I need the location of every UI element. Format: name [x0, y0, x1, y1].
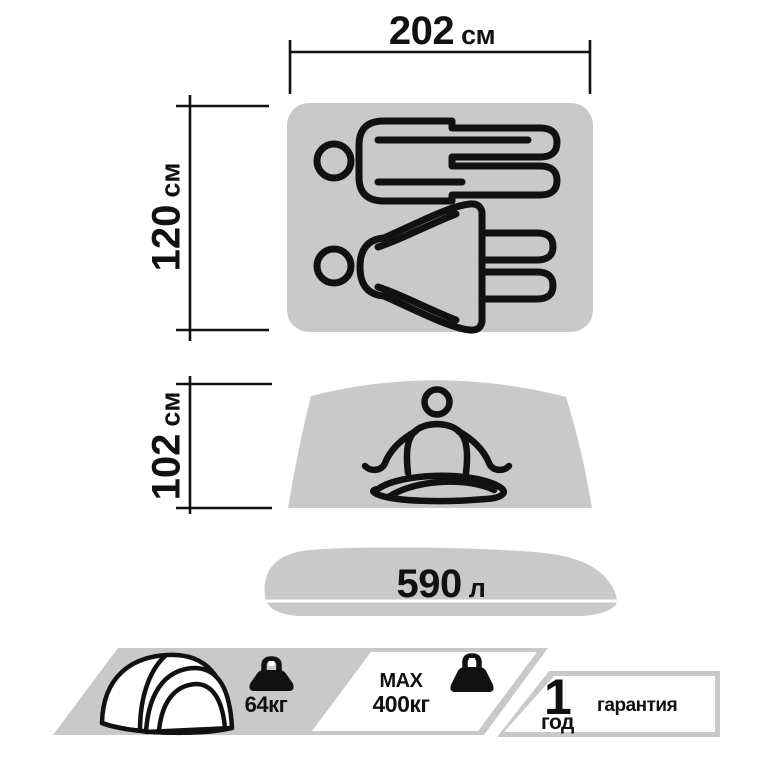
depth-dimension-line [176, 95, 269, 341]
width-dimension-label: 202см [389, 11, 495, 51]
tent-infographic: 202см 120см 102см 590л 64кг MAX 400кг 1 … [0, 0, 768, 768]
infographic-canvas [0, 0, 768, 768]
cross-section-shape [288, 380, 592, 508]
height-value: 102 [145, 434, 189, 501]
packed-weight-label: 64кг [245, 694, 288, 716]
volume-unit: л [469, 573, 486, 603]
max-load-line1: MAX [373, 671, 430, 691]
depth-value: 120 [145, 205, 189, 272]
volume-label: 590л [397, 564, 486, 604]
warranty-unit: год [541, 712, 574, 733]
width-unit: см [461, 20, 495, 50]
height-unit: см [156, 392, 186, 427]
depth-unit: см [156, 163, 186, 198]
width-value: 202 [389, 9, 454, 53]
max-load-label: MAX 400кг [373, 671, 430, 716]
max-load-line2: 400кг [373, 693, 430, 716]
volume-value: 590 [397, 562, 462, 606]
height-dimension-line [176, 376, 272, 514]
warranty-label: гарантия [597, 696, 677, 715]
